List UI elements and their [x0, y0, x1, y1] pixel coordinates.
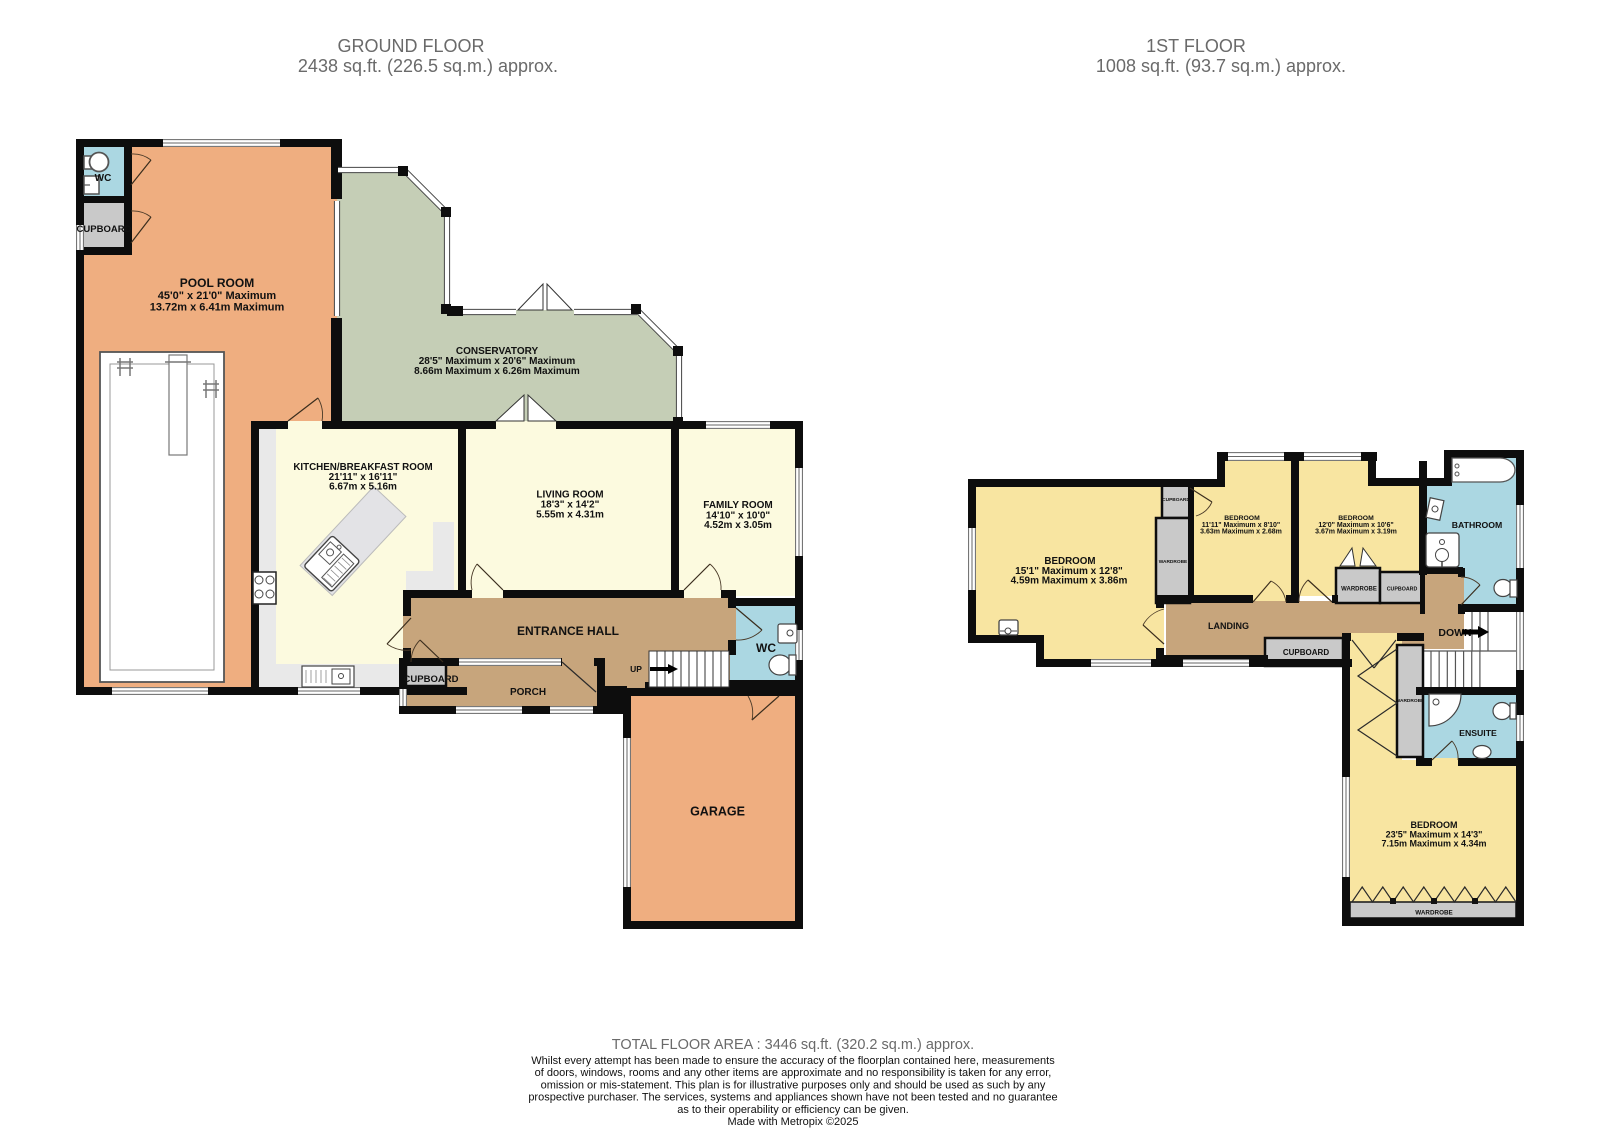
svg-text:TOTAL FLOOR AREA : 3446 sq.ft.: TOTAL FLOOR AREA : 3446 sq.ft. (320.2 sq…: [612, 1037, 974, 1053]
svg-text:GROUND FLOOR: GROUND FLOOR: [337, 36, 484, 56]
svg-text:1008 sq.ft. (93.7 sq.m.) appro: 1008 sq.ft. (93.7 sq.m.) approx.: [1096, 56, 1346, 76]
svg-text:WC: WC: [756, 641, 776, 655]
svg-text:ENSUITE: ENSUITE: [1459, 728, 1497, 738]
svg-text:PORCH: PORCH: [510, 687, 546, 698]
svg-text:CUPBOARD: CUPBOARD: [1162, 497, 1190, 503]
svg-text:45'0" x 21'0" Maximum: 45'0" x 21'0" Maximum: [158, 290, 277, 302]
svg-text:BEDROOM: BEDROOM: [1224, 515, 1260, 522]
svg-text:CUPBOARD: CUPBOARD: [404, 674, 459, 685]
svg-text:5.55m x 4.31m: 5.55m x 4.31m: [536, 510, 604, 521]
svg-text:CUPBOARD: CUPBOARD: [77, 224, 132, 235]
svg-text:7.15m Maximum x 4.34m: 7.15m Maximum x 4.34m: [1381, 839, 1486, 849]
svg-text:CUPBOARD: CUPBOARD: [1387, 587, 1418, 593]
svg-text:Made with Metropix ©2025: Made with Metropix ©2025: [727, 1116, 858, 1128]
svg-text:as to their operability or eff: as to their operability or efficiency ca…: [677, 1104, 909, 1116]
svg-text:prospective purchaser. The ser: prospective purchaser. The services, sys…: [528, 1092, 1057, 1104]
svg-text:omission or mis-statement. Thi: omission or mis-statement. This plan is …: [541, 1079, 1046, 1091]
svg-text:BEDROOM: BEDROOM: [1338, 515, 1374, 522]
svg-text:POOL ROOM: POOL ROOM: [180, 276, 254, 290]
svg-text:WARDROBE: WARDROBE: [1341, 587, 1377, 593]
svg-text:2438 sq.ft. (226.5 sq.m.) appr: 2438 sq.ft. (226.5 sq.m.) approx.: [298, 56, 558, 76]
svg-text:4.59m Maximum x 3.86m: 4.59m Maximum x 3.86m: [1011, 576, 1128, 587]
svg-text:UP: UP: [630, 664, 642, 674]
svg-text:Whilst every attempt has been: Whilst every attempt has been made to en…: [531, 1055, 1055, 1067]
svg-text:of doors, windows, rooms and a: of doors, windows, rooms and any other i…: [535, 1067, 1052, 1079]
svg-text:13.72m x 6.41m Maximum: 13.72m x 6.41m Maximum: [150, 302, 285, 314]
svg-text:4.52m x 3.05m: 4.52m x 3.05m: [704, 520, 772, 531]
svg-text:WARDROBE: WARDROBE: [1159, 559, 1188, 565]
svg-text:3.63m Maximum x 2.68m: 3.63m Maximum x 2.68m: [1200, 529, 1282, 536]
svg-text:WARDROBE: WARDROBE: [1415, 910, 1452, 917]
svg-text:3.67m Maximum x 3.19m: 3.67m Maximum x 3.19m: [1315, 529, 1397, 536]
svg-text:6.67m x 5.16m: 6.67m x 5.16m: [329, 482, 397, 493]
svg-text:CUPBOARD: CUPBOARD: [1283, 648, 1329, 657]
svg-text:BEDROOM: BEDROOM: [1411, 820, 1458, 830]
svg-text:WC: WC: [95, 173, 112, 184]
svg-text:1ST FLOOR: 1ST FLOOR: [1146, 36, 1246, 56]
svg-text:8.66m Maximum x 6.26m Maximum: 8.66m Maximum x 6.26m Maximum: [414, 366, 580, 377]
svg-text:GARAGE: GARAGE: [690, 805, 745, 819]
svg-text:ENTRANCE HALL: ENTRANCE HALL: [517, 624, 619, 638]
svg-text:WARDROBE: WARDROBE: [1396, 698, 1425, 704]
svg-text:FAMILY ROOM: FAMILY ROOM: [703, 500, 772, 511]
svg-text:LANDING: LANDING: [1208, 621, 1249, 631]
svg-text:BATHROOM: BATHROOM: [1452, 520, 1503, 530]
